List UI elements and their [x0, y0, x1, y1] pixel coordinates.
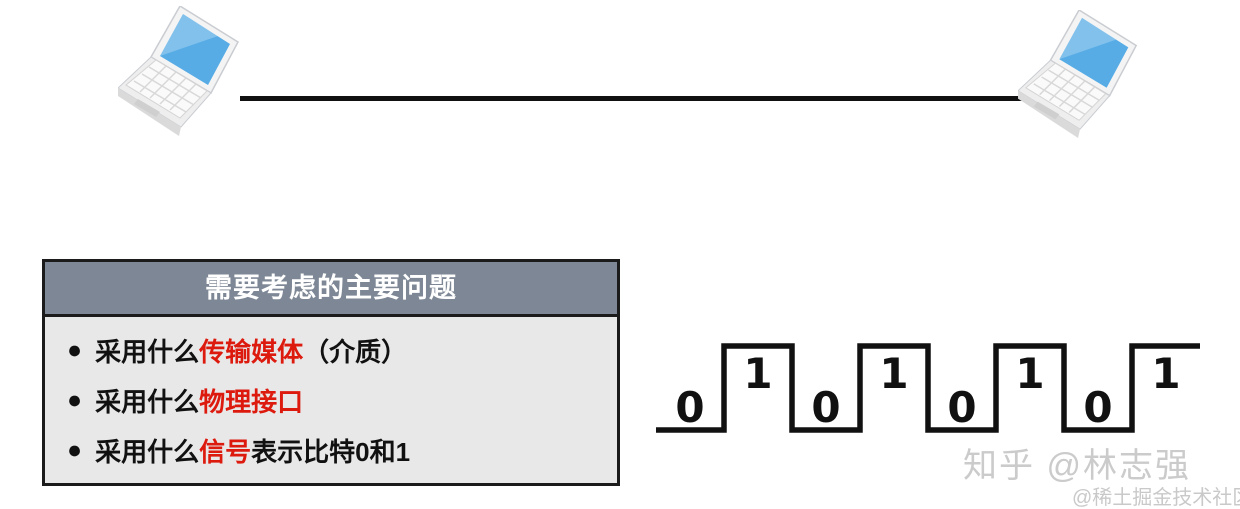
laptop-left-icon — [118, 6, 250, 143]
connection-line — [240, 96, 1030, 101]
bullet-icon: ● — [67, 388, 82, 413]
wave-bit-label: 1 — [743, 349, 772, 398]
wave-bit-label: 1 — [1015, 349, 1044, 398]
issues-box: 需要考虑的主要问题 ●采用什么传输媒体（介质）●采用什么物理接口●采用什么信号表… — [42, 259, 620, 486]
issue-text: 表示比特0和1 — [251, 432, 410, 469]
issue-text: 采用什么 — [95, 382, 199, 419]
laptop-icon — [118, 6, 250, 138]
signal-waveform: 01010101 — [650, 328, 1206, 443]
issue-item: ●采用什么信号表示比特0和1 — [67, 425, 607, 475]
issue-keyword: 信号 — [199, 432, 251, 469]
laptop-right-icon — [1018, 10, 1148, 145]
wave-line — [656, 346, 1200, 430]
wave-bit-label: 1 — [879, 349, 908, 398]
issue-item: ●采用什么物理接口 — [67, 375, 607, 425]
issue-text: 采用什么 — [95, 432, 199, 469]
wave-bit-label: 0 — [675, 383, 704, 432]
issue-text: （介质） — [303, 332, 407, 369]
issue-text: 采用什么 — [95, 332, 199, 369]
issue-item: ●采用什么传输媒体（介质） — [67, 325, 607, 375]
wave-bit-label: 1 — [1151, 349, 1180, 398]
wave-bit-label: 0 — [811, 383, 840, 432]
watermark-zhihu: 知乎 @林志强 — [963, 438, 1191, 487]
laptop-icon — [1018, 10, 1148, 140]
issues-box-title: 需要考虑的主要问题 — [45, 262, 617, 317]
bullet-icon: ● — [67, 338, 82, 363]
wave-bit-label: 0 — [1083, 383, 1112, 432]
issues-list: ●采用什么传输媒体（介质）●采用什么物理接口●采用什么信号表示比特0和1 — [45, 317, 617, 483]
diagram-canvas: 需要考虑的主要问题 ●采用什么传输媒体（介质）●采用什么物理接口●采用什么信号表… — [0, 0, 1240, 509]
watermark-juejin: @稀土掘金技术社区 — [1072, 481, 1240, 509]
issue-keyword: 传输媒体 — [199, 332, 303, 369]
wave-bit-label: 0 — [947, 383, 976, 432]
bullet-icon: ● — [67, 438, 82, 463]
issue-keyword: 物理接口 — [199, 382, 303, 419]
